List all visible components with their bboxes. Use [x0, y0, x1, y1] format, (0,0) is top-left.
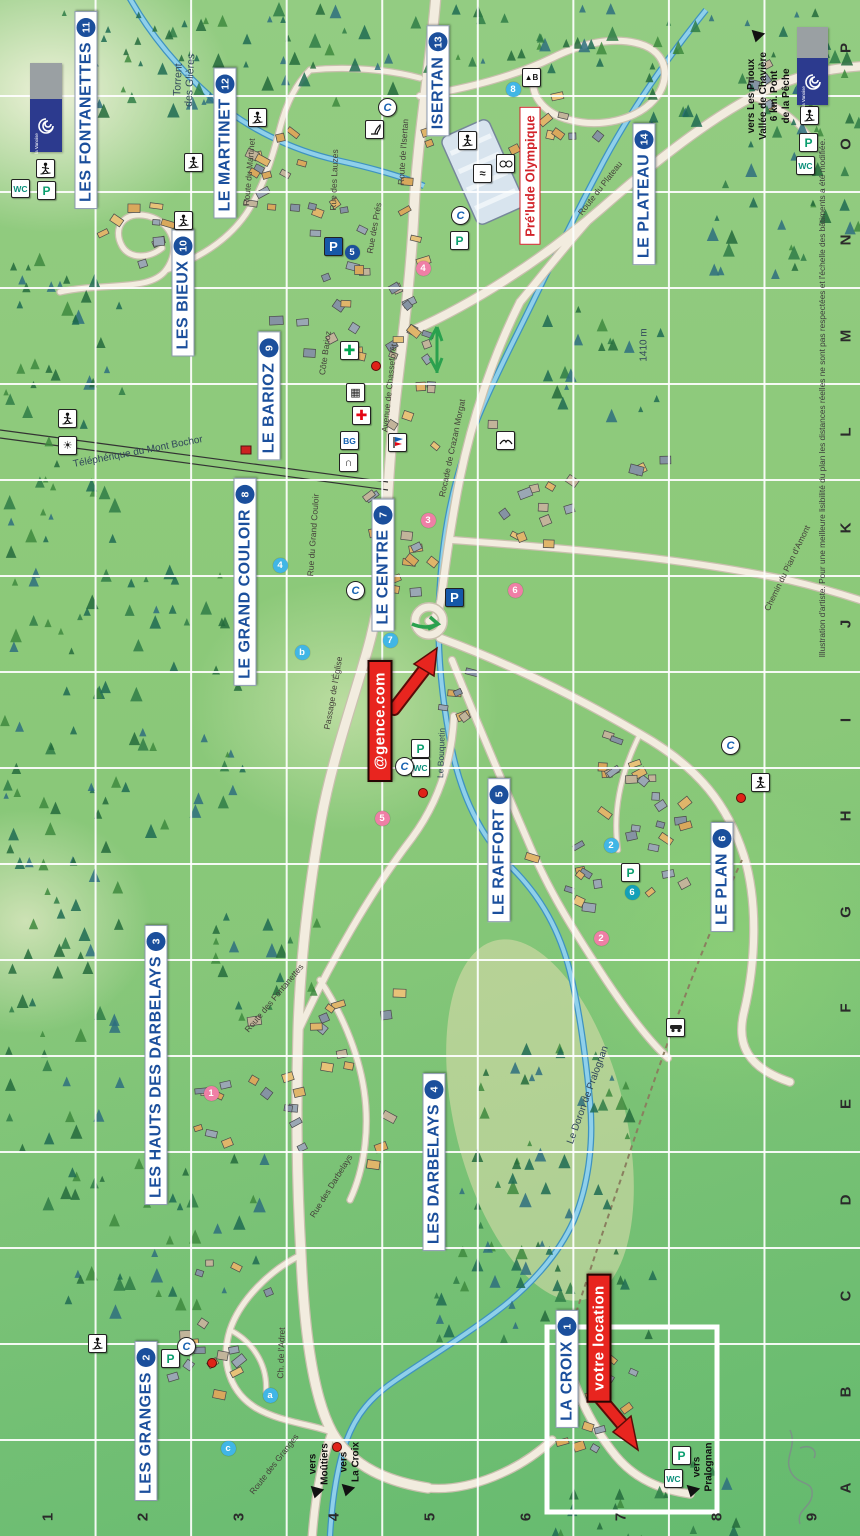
poi-red-dot	[207, 1358, 217, 1368]
place-label: Torrent des Glières	[171, 53, 198, 107]
district-badge: 11	[77, 18, 96, 37]
logo-blue-block: la Vanoise	[30, 99, 62, 152]
district-name: LE PLAN	[713, 853, 731, 925]
district-label-les-granges: LES GRANGES2	[135, 1341, 158, 1501]
resort-map: Illustration d'artiste. Pour une meilleu…	[0, 0, 860, 1536]
viewpoint-sun-icon: ☀	[58, 436, 77, 455]
axis-row-L: L	[838, 427, 855, 436]
skier-icon	[248, 108, 267, 127]
parking-icon: P	[445, 588, 464, 607]
road-label: Rue des Lauzes	[328, 149, 340, 211]
direction-sign: vers La Croix	[339, 1442, 362, 1482]
poi-red-dot	[418, 788, 428, 798]
skier-icon	[800, 106, 819, 125]
vanoise-park-logo: la Vanoise	[797, 27, 828, 105]
ad-label[interactable]: @gence.com	[368, 660, 393, 782]
axis-col-4: 4	[326, 1513, 343, 1521]
district-badge: 13	[429, 33, 448, 52]
telephone-icon: C	[177, 1337, 196, 1356]
district-badge: 6	[713, 829, 732, 848]
axis-row-K: K	[838, 523, 855, 534]
district-label-les-darbelays: LES DARBELAYS4	[423, 1073, 446, 1251]
parking-icon: P	[450, 231, 469, 250]
marker-badge-4: 4	[416, 261, 431, 276]
parking-icon: P	[161, 1349, 180, 1368]
car-sign-icon	[666, 1018, 685, 1037]
parking-icon: P	[324, 237, 343, 256]
logo-blue-block: la Vanoise	[797, 58, 828, 105]
marker-badge-2: 2	[594, 931, 609, 946]
marker-badge-4: 4	[273, 558, 288, 573]
skier-icon	[174, 211, 193, 230]
district-badge: 7	[374, 505, 393, 524]
skier-icon	[88, 1334, 107, 1353]
marker-badge-6: 6	[625, 885, 640, 900]
flag-icon	[388, 433, 407, 452]
marker-badge-8: 8	[506, 82, 521, 97]
marker-badge-7: 7	[383, 633, 398, 648]
axis-col-5: 5	[422, 1513, 439, 1521]
district-name: LES FONTANETTES	[77, 42, 95, 202]
axis-row-I: I	[838, 718, 855, 722]
district-name: ISERTAN	[429, 57, 447, 130]
telephone-icon: C	[378, 98, 397, 117]
wc-icon: WC	[796, 156, 815, 175]
wc-icon: WC	[664, 1469, 683, 1488]
vanoise-park-logo: la Vanoise	[30, 63, 62, 152]
marker-badge-b: b	[295, 645, 310, 660]
district-name: LA CROIX	[558, 1341, 576, 1421]
district-name: LE RAFFORT	[490, 809, 508, 915]
marker-badge-5: 5	[345, 245, 360, 260]
axis-row-P: P	[838, 43, 855, 53]
district-badge: 12	[216, 74, 235, 93]
arrow-overlay	[0, 0, 860, 1536]
district-label-le-centre: LE CENTRE7	[372, 498, 395, 631]
district-badge: 1	[558, 1317, 577, 1336]
telephone-icon: C	[721, 736, 740, 755]
district-label-le-raffort: LE RAFFORT5	[488, 778, 511, 922]
axis-col-7: 7	[613, 1513, 630, 1521]
district-badge: 4	[425, 1080, 444, 1099]
public-building-icon: ▦	[346, 383, 365, 402]
skier-icon	[58, 409, 77, 428]
logo-gray-block	[797, 27, 828, 58]
district-label-le-plateau: LE PLATEAU14	[633, 123, 656, 265]
district-name: LES GRANGES	[137, 1372, 155, 1494]
marker-badge-3: 3	[421, 513, 436, 528]
parking-icon: P	[621, 863, 640, 882]
poi-red-dot	[736, 793, 746, 803]
district-label-la-croix: LA CROIX1	[556, 1310, 579, 1428]
district-name: LE PLATEAU	[635, 154, 653, 258]
axis-row-F: F	[838, 1003, 855, 1012]
axis-row-A: A	[838, 1483, 855, 1494]
district-name: LE GRAND COULOIR	[236, 509, 254, 679]
direction-sign: vers Pralognan	[692, 1443, 715, 1492]
axis-col-9: 9	[804, 1513, 821, 1521]
direction-sign: vers Moûtiers	[308, 1443, 331, 1485]
axis-row-G: G	[838, 906, 855, 918]
parking-icon: P	[799, 133, 818, 152]
pool-waves-icon: ≈	[473, 164, 492, 183]
medical-icon: ✚	[352, 406, 371, 425]
ibex-icon	[365, 120, 384, 139]
tunnel-icon: ∩	[339, 453, 358, 472]
marker-badge-2: 2	[604, 838, 619, 853]
bird-icon	[496, 431, 515, 450]
district-name: LES DARBELAYS	[425, 1104, 443, 1244]
district-label-le-barioz: LE BARIOZ9	[258, 332, 281, 461]
poi-red-dot	[371, 361, 381, 371]
ad-label[interactable]: votre location	[587, 1273, 612, 1402]
fine-print: Illustration d'artiste. Pour une meilleu…	[817, 139, 827, 658]
district-badge: 2	[137, 1348, 156, 1367]
axis-row-C: C	[838, 1291, 855, 1302]
poi-red-dot	[332, 1442, 342, 1452]
district-badge: 9	[260, 339, 279, 358]
place-label: Le Bouquetin	[435, 728, 447, 778]
marker-badge-c: c	[221, 1441, 236, 1456]
district-label-les-bieux: LES BIEUX10	[172, 230, 195, 357]
axis-col-6: 6	[517, 1513, 534, 1521]
parking-icon: P	[37, 181, 56, 200]
axis-col-3: 3	[230, 1513, 247, 1521]
marker-badge-a: a	[263, 1388, 278, 1403]
guidepost-icon: ▲B	[522, 68, 541, 87]
parking-icon: P	[411, 739, 430, 758]
marker-badge-1: 1	[204, 1086, 219, 1101]
axis-row-O: O	[838, 138, 855, 150]
road-label: Ch. de l'Adret	[275, 1327, 287, 1379]
bank-bg-icon: BG	[340, 431, 359, 450]
wc-icon: WC	[11, 179, 30, 198]
axis-row-M: M	[838, 330, 855, 343]
marker-badge-6: 6	[508, 583, 523, 598]
district-label-isertan: ISERTAN13	[427, 26, 450, 137]
parking-icon: P	[672, 1446, 691, 1465]
telephone-icon: C	[451, 206, 470, 225]
axis-row-N: N	[838, 235, 855, 246]
axis-row-J: J	[838, 620, 855, 628]
faces-icon	[496, 154, 515, 173]
district-badge: 8	[236, 485, 255, 504]
district-badge: 3	[147, 932, 166, 951]
skier-icon	[751, 773, 770, 792]
oneway-arrow	[430, 327, 442, 373]
marker-badge-5: 5	[375, 811, 390, 826]
ice-skater-icon	[458, 131, 477, 150]
district-name: LES HAUTS DES DARBELAYS	[147, 956, 165, 1198]
district-badge: 10	[174, 237, 193, 256]
skier-icon	[36, 159, 55, 178]
axis-row-E: E	[838, 1099, 855, 1109]
logo-gray-block	[30, 63, 62, 99]
district-label-le-grand-couloir: LE GRAND COULOIR8	[234, 478, 257, 686]
district-label-le-martinet: LE MARTINET12	[214, 67, 237, 218]
district-name: LES BIEUX	[174, 261, 192, 350]
axis-row-B: B	[838, 1387, 855, 1398]
district-name: LE CENTRE	[374, 529, 392, 624]
district-badge: 14	[635, 130, 654, 149]
telephone-icon: C	[346, 581, 365, 600]
axis-col-1: 1	[39, 1513, 56, 1521]
district-label-le-plan: LE PLAN6	[711, 822, 734, 932]
axis-row-H: H	[838, 811, 855, 822]
district-label-les-fontanettes: LES FONTANETTES11	[75, 11, 98, 209]
oneway-arrow	[412, 617, 438, 629]
district-label-les-hauts-des-darbelays: LES HAUTS DES DARBELAYS3	[145, 925, 168, 1205]
district-badge: 5	[490, 785, 509, 804]
event-label-prelude-olympique: Pré'lude Olympique	[520, 107, 541, 245]
telephone-icon: C	[395, 757, 414, 776]
axis-row-D: D	[838, 1195, 855, 1206]
place-label: 1410 m	[639, 328, 650, 361]
district-name: LE BARIOZ	[260, 363, 278, 454]
direction-sign: vers Les Prioux Vallée de Chavière 6 km.…	[746, 52, 792, 140]
axis-col-2: 2	[135, 1513, 152, 1521]
district-name: LE MARTINET	[216, 98, 234, 211]
axis-col-8: 8	[708, 1513, 725, 1521]
skier-icon	[184, 153, 203, 172]
pharmacy-icon: ✚	[340, 341, 359, 360]
